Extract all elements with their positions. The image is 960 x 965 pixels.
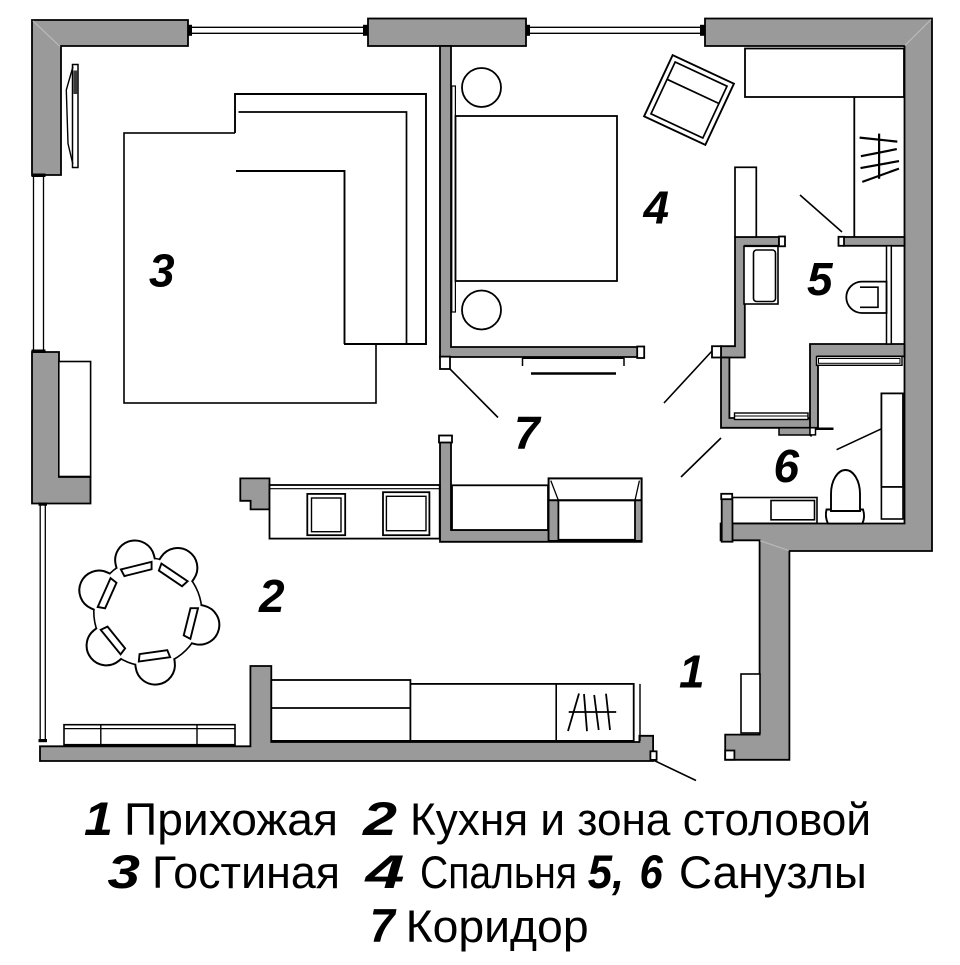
svg-text:Гостиная: Гостиная [152,847,340,898]
svg-text:6: 6 [640,845,664,898]
svg-text:3: 3 [149,245,175,297]
svg-text:Коридор: Коридор [406,901,589,952]
svg-text:4: 4 [643,182,670,234]
svg-text:2: 2 [258,570,285,622]
svg-text:5,: 5, [588,845,625,898]
svg-text:7: 7 [514,407,542,459]
svg-text:Санузлы: Санузлы [679,847,867,898]
svg-text:Спальня: Спальня [420,847,577,898]
svg-text:1: 1 [84,792,113,845]
svg-text:5: 5 [807,253,834,305]
svg-text:6: 6 [774,440,800,492]
svg-text:Прихожая: Прихожая [124,794,338,845]
svg-text:1: 1 [679,646,705,698]
svg-text:4: 4 [364,845,404,898]
svg-text:3: 3 [108,845,141,898]
svg-text:Кухня и зона столовой: Кухня и зона столовой [410,794,871,845]
svg-text:7: 7 [370,899,397,952]
svg-text:2: 2 [362,792,397,845]
